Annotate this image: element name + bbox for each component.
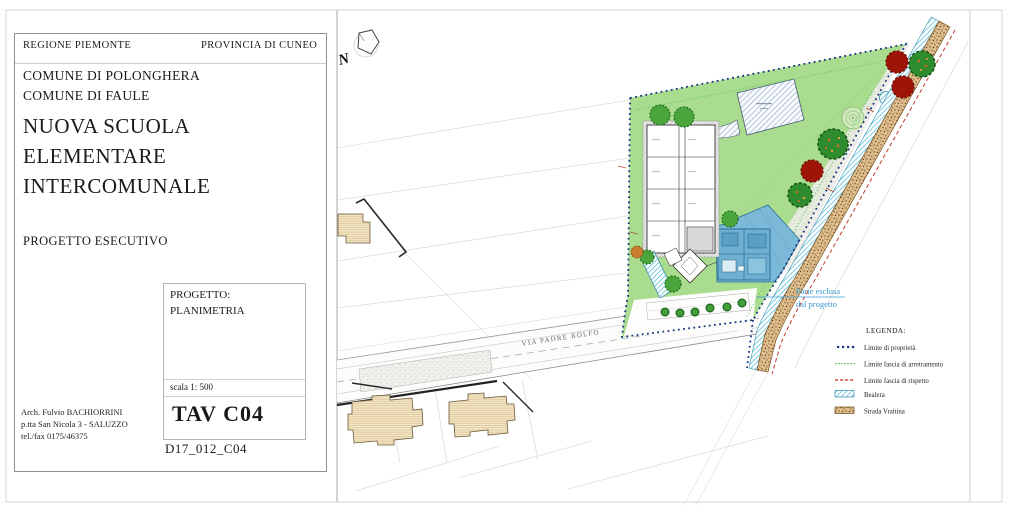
legend-label: Limite fascia di rispetto — [864, 378, 929, 385]
architect-name: Arch. Fulvio BACHIORRINI — [21, 407, 122, 417]
stairs — [687, 227, 713, 251]
tree-orange — [631, 246, 643, 258]
legend-label: Bealera — [864, 392, 885, 399]
legend-label: Strada Vraitina — [864, 409, 905, 416]
drawing-info-box: PROGETTO: PLANIMETRIA scala 1: 500 TAV C… — [163, 283, 306, 440]
divider — [15, 63, 326, 64]
legend-title: LEGENDA: — [866, 326, 906, 335]
legend-swatch-strada — [835, 407, 854, 414]
project-title-line2: ELEMENTARE — [23, 144, 166, 169]
municipality-1: COMUNE DI POLONGHERA — [23, 68, 200, 84]
province-label: PROVINCIA DI CUNEO — [201, 40, 317, 51]
municipality-2: COMUNE DI FAULE — [23, 88, 150, 104]
region-label: REGIONE PIEMONTE — [23, 40, 131, 51]
phase-label: PROGETTO ESECUTIVO — [23, 234, 168, 249]
architect-address: p.tta San Nicola 3 - SALUZZO — [21, 419, 128, 429]
legend-label: Limite fascia di arretramento — [864, 362, 944, 369]
house-footprint — [348, 395, 423, 445]
architect-phone: tel./fax 0175/46375 — [21, 431, 88, 441]
existing-building-blue — [718, 229, 770, 280]
sheet-number: TAV C04 — [172, 401, 264, 427]
legend-swatch-bealera — [835, 391, 854, 398]
svg-text:Parte esclusa: Parte esclusa — [796, 286, 840, 296]
drawing-sheet: VIA PADRE ROLFO — [0, 0, 1024, 515]
divider — [164, 396, 305, 397]
project-title-line1: NUOVA SCUOLA — [23, 114, 190, 139]
project-label: PROGETTO: — [170, 289, 230, 301]
drawing-name: PLANIMETRIA — [170, 305, 245, 317]
divider — [164, 379, 305, 380]
scale-label: scala 1: 500 — [170, 382, 213, 392]
svg-text:dal progetto: dal progetto — [796, 299, 837, 309]
project-title-line3: INTERCOMUNALE — [23, 174, 210, 199]
title-block: REGIONE PIEMONTE PROVINCIA DI CUNEO COMU… — [14, 33, 327, 472]
legend-label: Limite di proprietà — [864, 345, 915, 352]
file-code: D17_012_C04 — [165, 441, 247, 457]
